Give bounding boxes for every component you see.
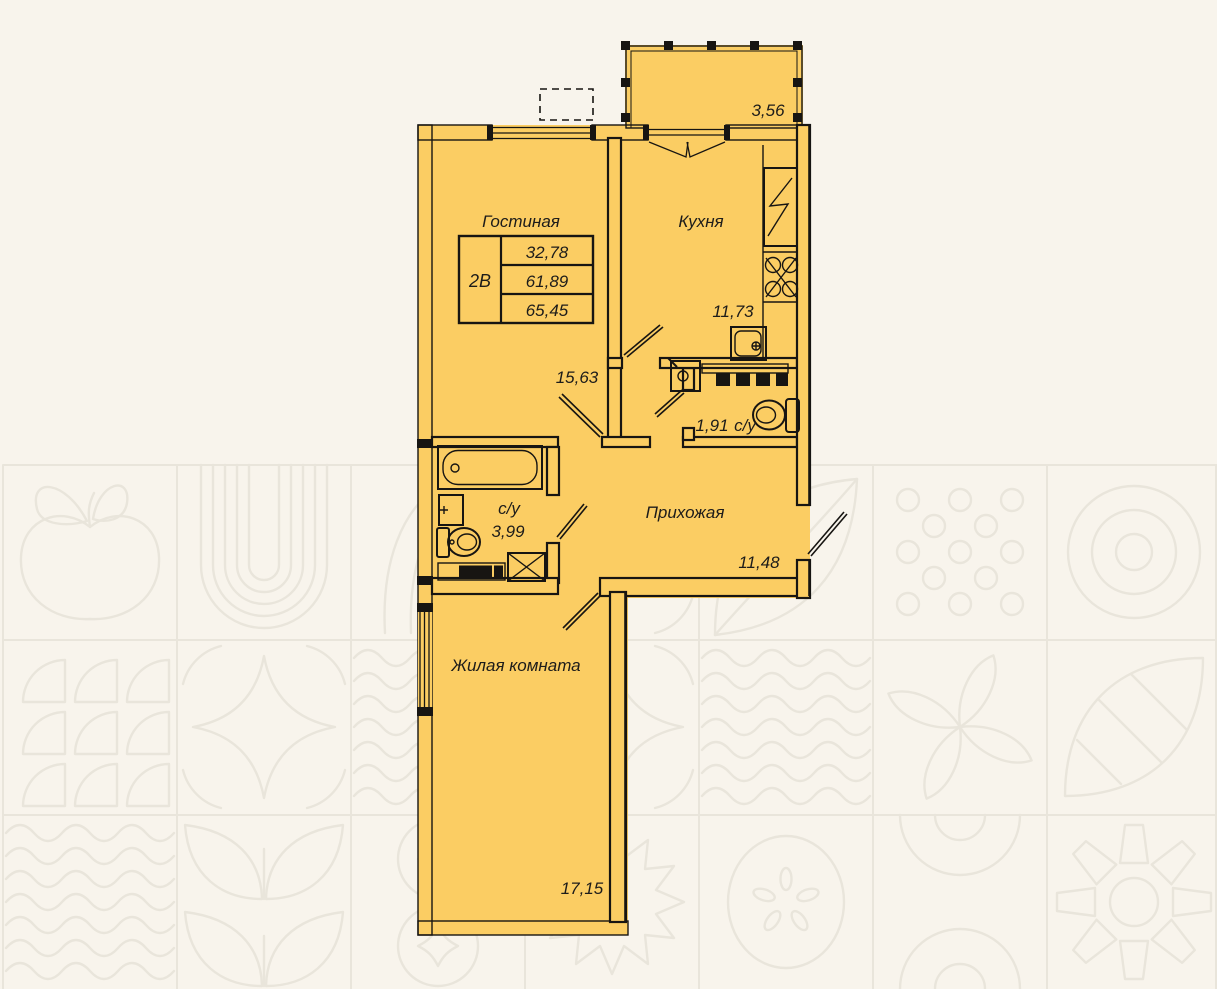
kitchen-area: 11,73 — [712, 302, 754, 321]
hallway-label: Прихожая — [646, 503, 725, 522]
bedroom-window — [418, 612, 432, 707]
total-area-value: 65,45 — [526, 301, 569, 320]
living-room-window — [487, 125, 596, 140]
wc-label: с/у — [734, 416, 757, 435]
bathroom-area: 3,99 — [491, 522, 525, 541]
kitchen-label: Кухня — [678, 212, 723, 231]
living-room-area: 15,63 — [556, 368, 599, 387]
bedroom-area: 17,15 — [561, 879, 604, 898]
floor-plan: 2В 32,78 61,89 65,45 Гостиная 15,63 Кухн… — [0, 0, 1217, 989]
balcony-area: 3,56 — [751, 101, 785, 120]
floor-plan-page: 2В 32,78 61,89 65,45 Гостиная 15,63 Кухн… — [0, 0, 1217, 989]
living-area-value: 32,78 — [526, 243, 569, 262]
unit-type-label: 2В — [468, 271, 491, 291]
hallway-area: 11,48 — [738, 553, 780, 572]
bathroom-label: с/у — [498, 499, 521, 518]
entrance-door — [808, 512, 847, 556]
wc-area: 1,91 — [695, 416, 728, 435]
bedroom-label: Жилая комната — [450, 656, 580, 675]
living-room-label: Гостиная — [482, 212, 560, 231]
area-value: 61,89 — [526, 272, 569, 291]
ac-unit-outline — [540, 89, 593, 120]
